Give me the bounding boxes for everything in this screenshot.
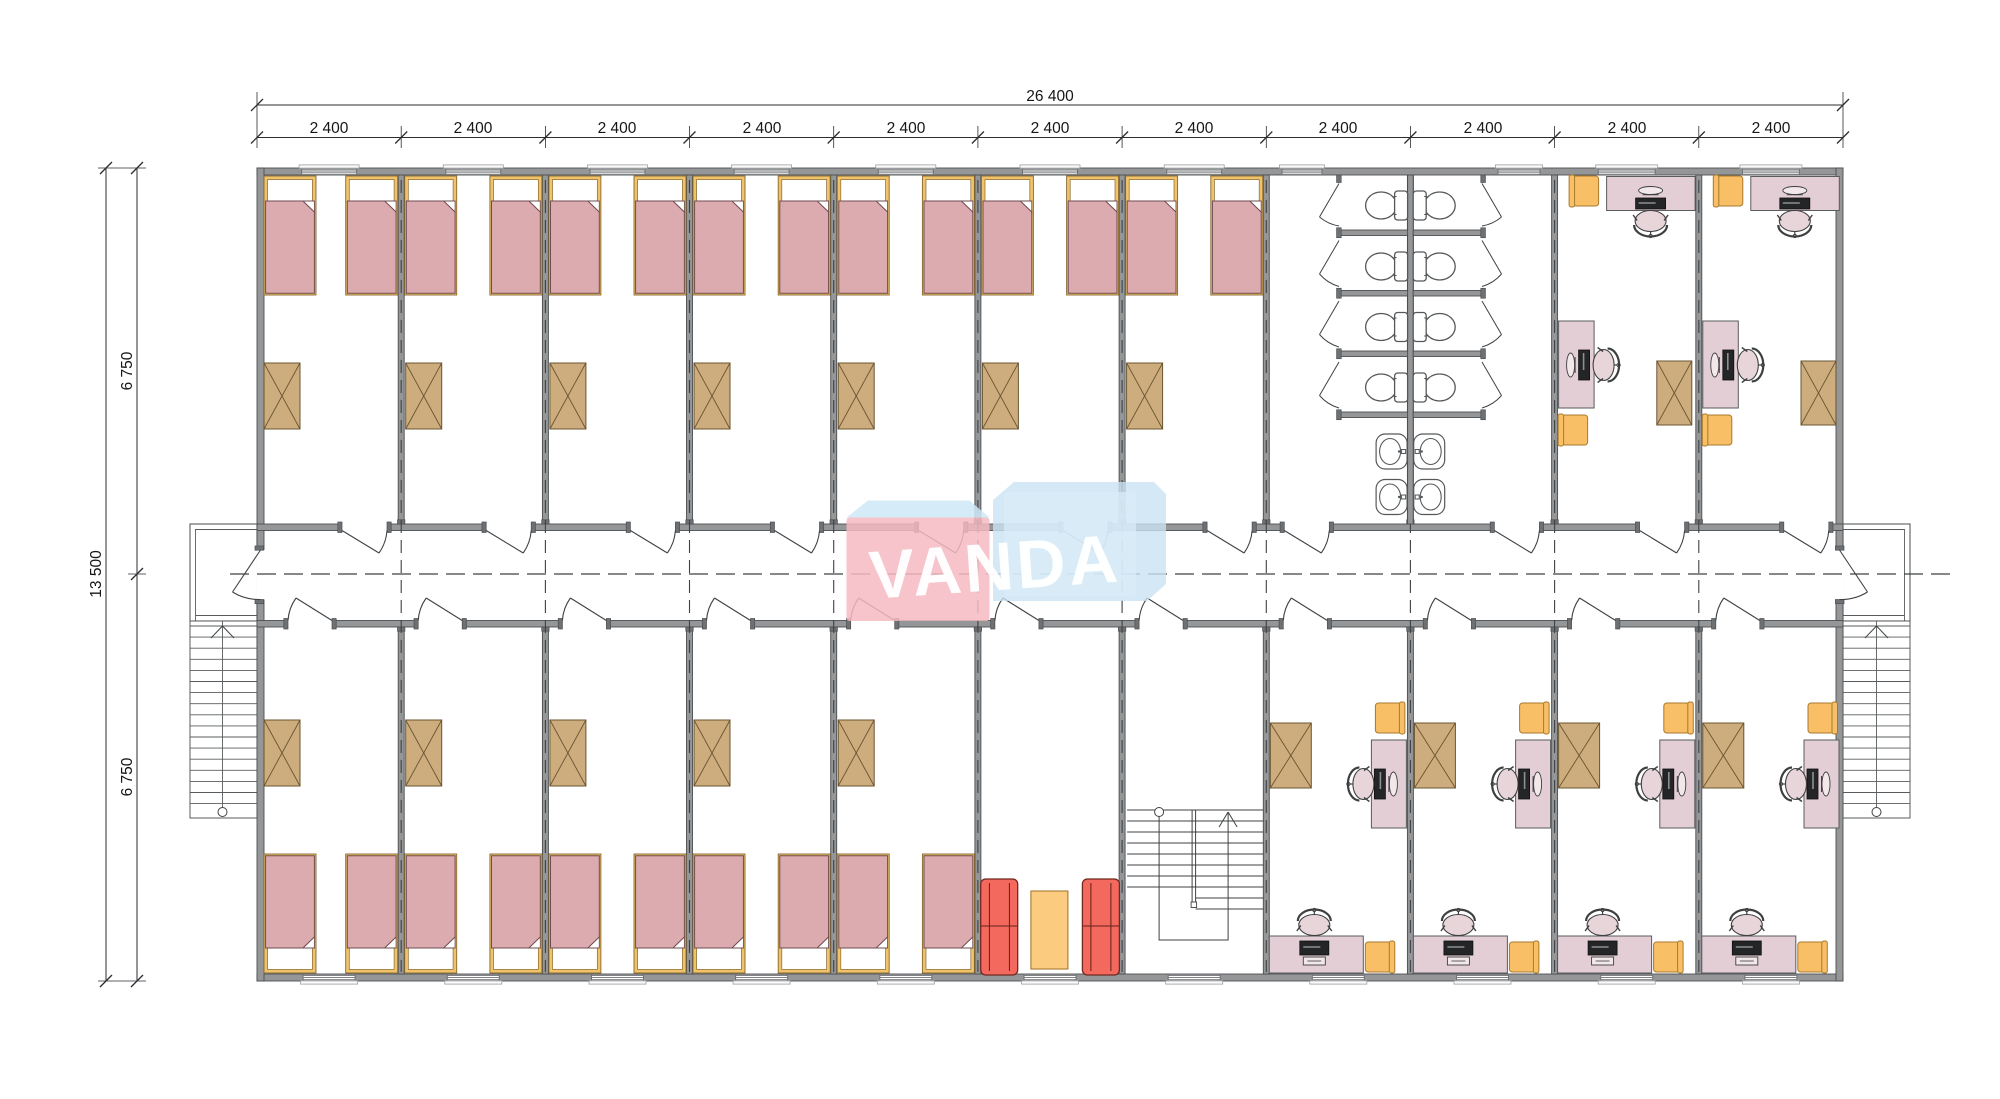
svg-text:2 400: 2 400 <box>1464 120 1503 137</box>
svg-text:2 400: 2 400 <box>1752 120 1791 137</box>
svg-text:2 400: 2 400 <box>598 120 637 137</box>
svg-text:26 400: 26 400 <box>1026 88 1074 105</box>
svg-text:2 400: 2 400 <box>1608 120 1647 137</box>
svg-text:2 400: 2 400 <box>887 120 926 137</box>
svg-text:2 400: 2 400 <box>1031 120 1070 137</box>
svg-text:6 750: 6 750 <box>119 757 136 796</box>
svg-text:2 400: 2 400 <box>1319 120 1358 137</box>
svg-text:13 500: 13 500 <box>88 550 105 598</box>
svg-text:2 400: 2 400 <box>743 120 782 137</box>
svg-text:6 750: 6 750 <box>119 351 136 390</box>
svg-text:2 400: 2 400 <box>1175 120 1214 137</box>
svg-text:2 400: 2 400 <box>310 120 349 137</box>
svg-text:2 400: 2 400 <box>454 120 493 137</box>
